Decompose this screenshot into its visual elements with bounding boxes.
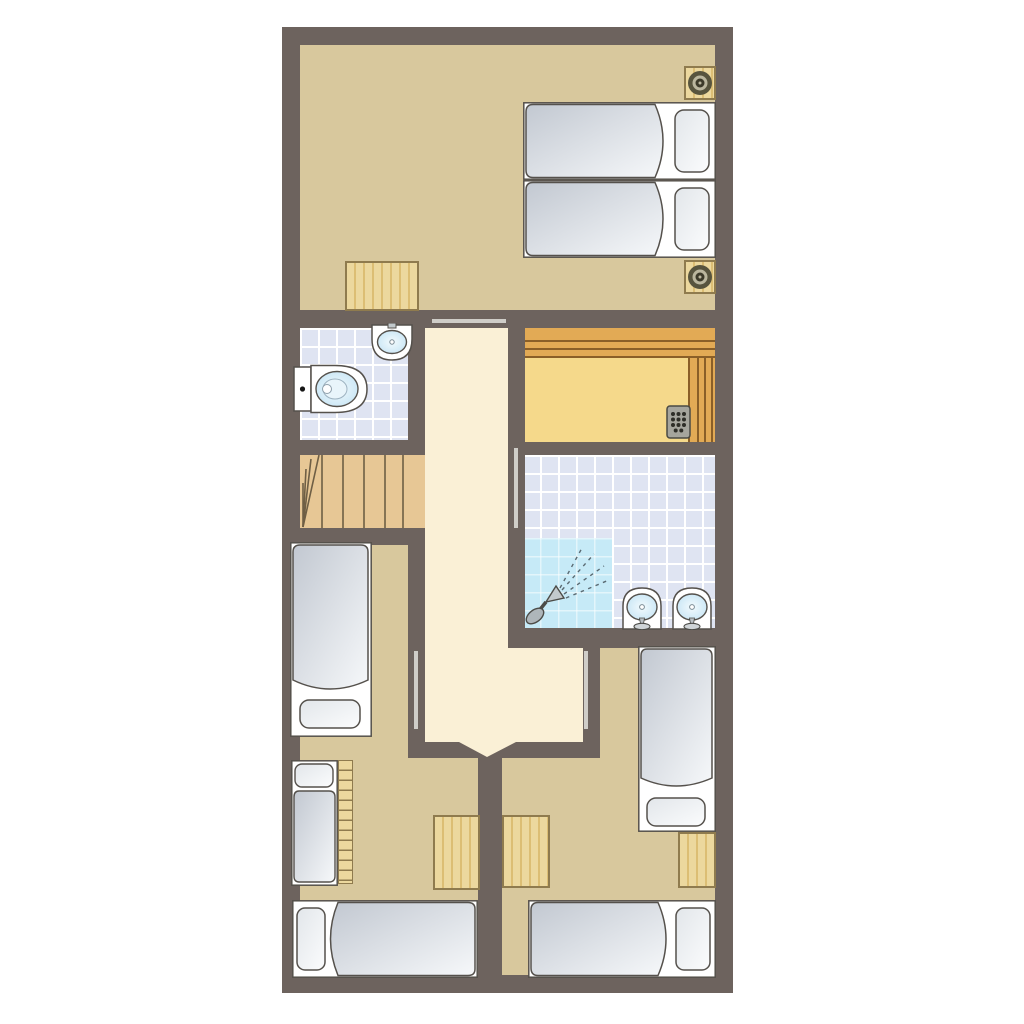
sauna-bench-top — [525, 328, 716, 358]
bed-right-middle — [638, 646, 716, 832]
wall-center-divider — [478, 750, 502, 993]
staircase — [300, 455, 425, 528]
table-center-right — [502, 815, 550, 888]
duvet — [331, 903, 476, 976]
wall-outer-right — [715, 27, 733, 993]
bed-left-middle — [290, 542, 372, 737]
washbasin-1 — [618, 584, 666, 630]
wall-bathroom-bottom — [282, 440, 420, 455]
faucet — [388, 323, 396, 328]
drain — [690, 605, 695, 610]
duvet — [294, 791, 335, 882]
shower-head-icon — [524, 540, 610, 626]
hallway-upper-floor — [425, 328, 508, 648]
pillow — [676, 908, 710, 970]
pillow — [300, 700, 360, 728]
floor-plan — [0, 0, 1024, 1024]
pillow — [295, 764, 333, 787]
ceiling-speaker-bottom — [687, 264, 713, 290]
hallway-notch — [459, 742, 516, 757]
pillow — [675, 188, 709, 250]
spray-lines — [560, 548, 609, 598]
table-right-wall — [678, 832, 716, 888]
flush-button — [300, 386, 305, 391]
duvet — [526, 105, 663, 178]
duvet — [531, 903, 666, 976]
duvet — [641, 649, 712, 786]
door-opening-right-room — [584, 651, 588, 729]
wall-shower-bottom — [508, 628, 716, 648]
duvet — [526, 183, 663, 256]
drain — [640, 605, 645, 610]
wall-outer-top — [282, 27, 733, 45]
table-left — [433, 815, 480, 890]
door-opening-shower — [514, 448, 518, 528]
pillow — [647, 798, 705, 826]
twin-bed-top-a — [523, 102, 716, 180]
duvet — [293, 545, 368, 689]
wall-mid-horizontal — [282, 310, 733, 328]
washbasin-2 — [668, 584, 716, 630]
washbasin-small — [369, 323, 415, 363]
door-opening-left-room — [414, 651, 418, 729]
desk-top-room — [345, 261, 419, 311]
ceiling-speaker-top — [687, 70, 713, 96]
bed-bottom-left — [292, 900, 478, 978]
toilet — [293, 362, 371, 416]
pillow — [297, 908, 325, 970]
bunk-bed — [291, 760, 338, 886]
wall-sauna-bottom — [508, 442, 716, 455]
door-opening-top — [432, 319, 506, 323]
drain — [390, 340, 394, 344]
bed-bottom-right — [528, 900, 716, 978]
shower-nozzle — [546, 586, 564, 602]
bunk-ladder — [338, 760, 353, 884]
sauna-heater — [666, 405, 691, 439]
twin-bed-top-b — [523, 180, 716, 258]
pillow — [675, 110, 709, 172]
hallway-lower-floor — [425, 648, 583, 742]
staircase-treads — [300, 455, 425, 528]
